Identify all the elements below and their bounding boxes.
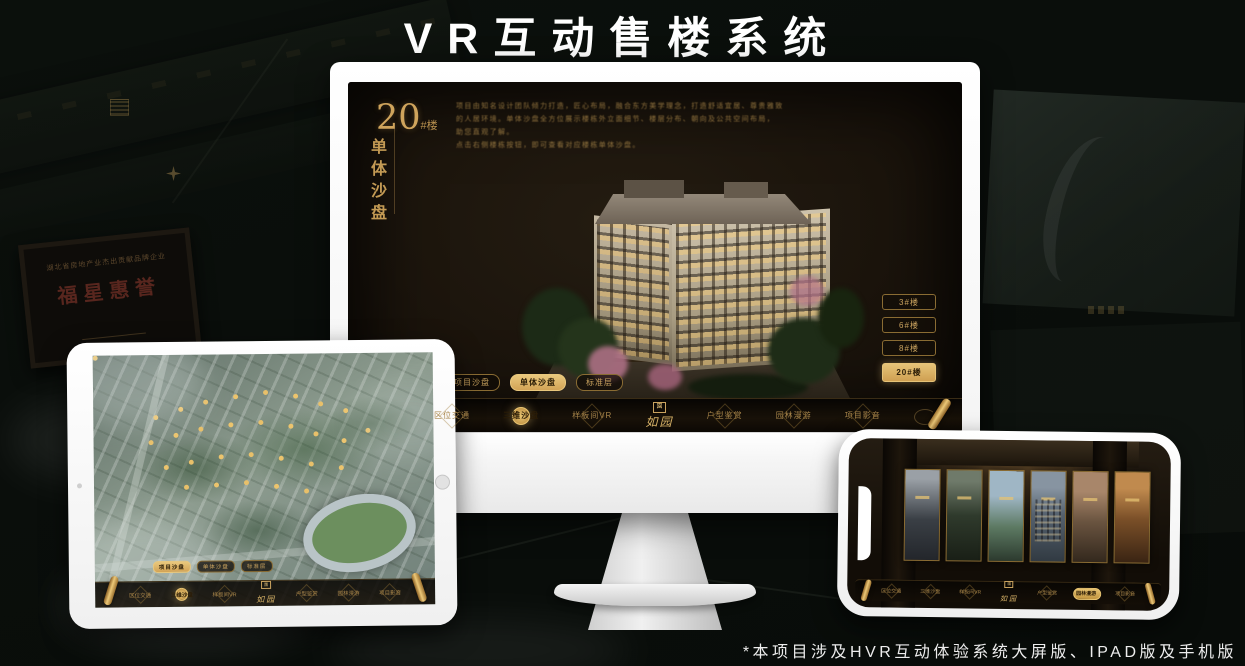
building-button-6[interactable]: 6#楼 [882,317,936,333]
gallery-panel[interactable] [1072,471,1109,563]
nav-item-floorplans[interactable]: 户型鉴赏 [1037,589,1057,596]
plaque-divider [82,332,147,340]
ipad-home-button [435,475,450,490]
plaque-brand-text: 福星惠誉 [27,267,191,313]
building-selector: 3#楼 6#楼 8#楼 20#楼 [882,294,936,382]
panel-gold-label [999,497,1013,500]
logo-name: 如园 [1000,594,1018,602]
nav-item-floorplans[interactable]: 户型鉴赏 [707,410,743,421]
phone-notch [858,486,872,560]
brand-logo[interactable]: 園 如园 [645,402,673,430]
title-divider [394,126,395,214]
nav-item-project-media[interactable]: 项目影音 [845,410,881,421]
panel-gold-label [915,496,929,499]
phone-device: 区位交通 三维沙盘 样板间VR 園 如园 户型鉴赏 园林漫游 项目影音 [837,429,1181,620]
gallery-panel[interactable] [1114,471,1151,563]
nav-item-3d-sandbox[interactable]: 三维沙盘 [503,410,539,421]
gallery-panel[interactable] [1030,470,1067,562]
nav-item-project-media[interactable]: 项目影音 [1115,590,1135,597]
building-roof-gable [724,182,768,198]
gallery-panel[interactable] [946,469,983,561]
gallery-panel[interactable] [988,470,1025,562]
description-line: 点击右侧楼栋按钮，即可查看对应楼栋单体沙盘。 [456,139,886,152]
ipad-camera [77,483,82,488]
block-number: 20 [376,98,421,138]
building-roof [586,194,812,224]
brand-logo[interactable]: 園 如园 [256,581,276,606]
nav-item-3d-sandbox[interactable]: 三维沙盘 [171,590,193,598]
phone-nav-bar: 区位交通 三维沙盘 样板间VR 園 如园 户型鉴赏 园林漫游 项目影音 [855,579,1161,605]
footnote-caption: *本项目涉及HVR互动体验系统大屏版、IPAD版及手机版 [743,638,1237,662]
nav-item-garden-tour[interactable]: 园林漫游 [776,410,812,421]
project-description: 项目由知名设计团队倾力打造，匠心布局，融合东方美学理念，打造舒适宜居、尊贵雅致 … [456,100,886,152]
ipad-nav-bar: 区位交通 三维沙盘 样板间VR 園 如园 户型鉴赏 园林漫游 项目影音 [95,578,435,608]
background-mist [330,620,630,666]
ipad-screen: 项目沙盘 单体沙盘 标准层 区位交通 三维沙盘 样板间VR 園 如园 户型鉴赏 … [93,352,436,608]
panel-gold-label [1083,498,1097,501]
description-line: 的人居环境。单体沙盘全方位展示楼栋外立面细节、楼层分布、朝向及公共空间布局， [456,113,886,126]
nav-item-location[interactable]: 区位交通 [129,591,151,599]
scroll-menu-icon[interactable] [914,401,948,431]
panel-gold-label [1041,497,1055,500]
logo-seal-icon: 園 [653,402,666,413]
nav-item-showroom-vr[interactable]: 样板间VR [572,410,612,421]
tab-standard-floor[interactable]: 标准层 [241,560,273,572]
building-button-20-active[interactable]: 20#楼 [882,363,936,382]
nav-item-showroom-vr[interactable]: 样板间VR [212,590,236,598]
block-subtitle-vertical: 单体沙盘 [364,138,388,226]
building-roof-gable [624,180,684,198]
building-button-8[interactable]: 8#楼 [882,340,936,356]
blossom-tree [790,276,824,306]
description-line: 助您直观了解。 [456,126,886,139]
nav-item-garden-tour[interactable]: 园林漫游 [337,588,359,596]
ipad-view-tabs: 项目沙盘 单体沙盘 标准层 [153,560,273,573]
monitor-stand-neck [588,510,722,630]
gallery-panel[interactable] [904,469,941,561]
panel-gold-label [1125,498,1139,501]
tab-project-sandbox[interactable]: 项目沙盘 [153,561,191,573]
nav-item-project-media[interactable]: 项目影音 [379,588,401,596]
background-gold-label [1088,306,1128,314]
panorama-gallery [904,469,1151,564]
nav-item-floorplans[interactable]: 户型鉴赏 [296,589,318,597]
building-button-3[interactable]: 3#楼 [882,294,936,310]
view-tabs: 项目沙盘 单体沙盘 标准层 [444,374,623,391]
block-title: 20#楼 [376,100,438,136]
nav-item-location[interactable]: 区位交通 [434,410,470,421]
blossom-tree [648,364,682,390]
tab-standard-floor[interactable]: 标准层 [576,374,623,391]
tab-single-sandbox[interactable]: 单体沙盘 [510,374,566,391]
phone-screen: 区位交通 三维沙盘 样板间VR 園 如园 户型鉴赏 园林漫游 项目影音 [847,438,1171,611]
block-suffix: #楼 [421,120,438,132]
background-seal-mark [110,99,129,116]
logo-seal-icon: 園 [1005,580,1014,587]
page-title: VR互动售楼系统 [0,4,1245,66]
nav-item-showroom-vr[interactable]: 样板间VR [959,588,981,595]
monitor-stand-base [554,584,756,606]
tree [818,288,864,348]
nav-item-location[interactable]: 区位交通 [881,587,901,594]
description-line: 项目由知名设计团队倾力打造，匠心布局，融合东方美学理念，打造舒适宜居、尊贵雅致 [456,100,886,113]
tab-single-sandbox[interactable]: 单体沙盘 [197,560,235,572]
logo-name: 如园 [645,415,673,429]
logo-name: 如园 [256,595,276,604]
poster-canvas: 湖北省房地产业杰出贡献品牌企业 福星惠誉 VR互动售楼系统 20#楼 单体沙盘 … [0,0,1245,666]
nav-item-3d-sandbox[interactable]: 三维沙盘 [920,588,940,595]
panel-gold-label [957,496,971,499]
logo-seal-icon: 園 [261,581,271,589]
background-aerial-photo [983,90,1245,317]
ipad-device: 项目沙盘 单体沙盘 标准层 区位交通 三维沙盘 样板间VR 園 如园 户型鉴赏 … [67,339,458,629]
brand-logo[interactable]: 園 如园 [1000,580,1018,604]
nav-item-garden-tour[interactable]: 园林漫游 [1076,590,1096,597]
